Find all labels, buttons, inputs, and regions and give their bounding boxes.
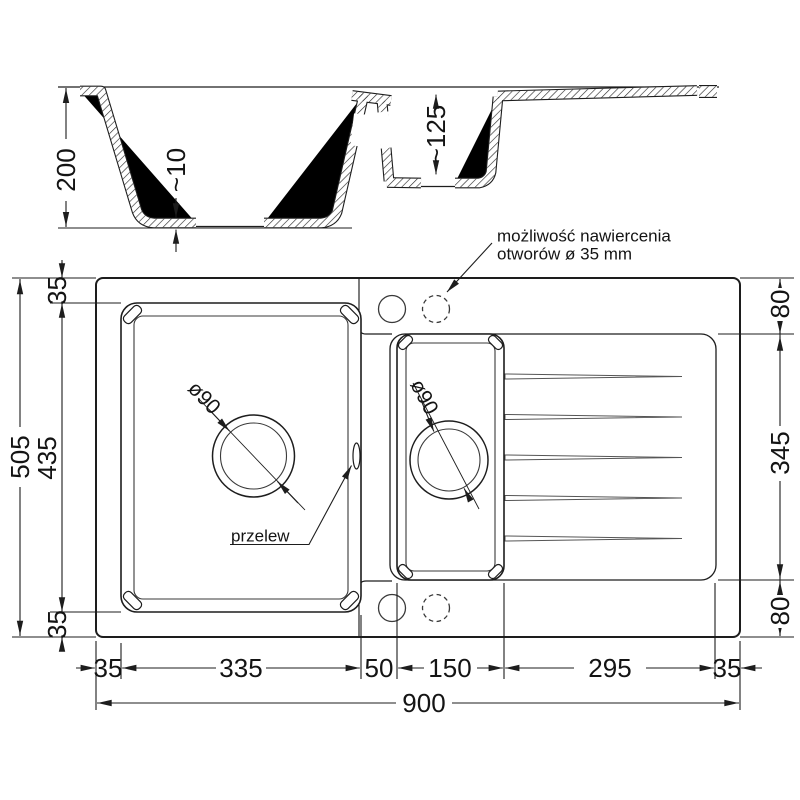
dim-bottom-m6-label: 35 — [713, 653, 742, 683]
plan-view: ø90 ø90 możliwość naw — [96, 227, 740, 638]
dim-left-bottom-label: 35 — [42, 610, 72, 639]
sink-technical-drawing: 200 ~10 ~125 — [0, 0, 800, 800]
drawing-svg: 200 ~10 ~125 — [0, 0, 800, 800]
dim-bottom-thickness-label: ~10 — [161, 148, 191, 192]
overflow-slot — [353, 443, 360, 469]
dim-left-middle-label: 435 — [32, 436, 62, 479]
overflow-channel-gap-small — [383, 112, 387, 148]
overflow-channel-gap-main — [357, 114, 361, 146]
dim-small-bowl-depth-label: ~125 — [421, 105, 451, 164]
dim-right-middle-label: 345 — [765, 431, 795, 474]
dim-width-total: 900 — [97, 688, 739, 718]
dim-left-top-label: 35 — [42, 276, 72, 305]
dim-bottom-m4-label: 150 — [428, 653, 471, 683]
small-bowl: ø90 — [397, 334, 504, 580]
dim-depth-total: 200 — [51, 88, 81, 227]
dim-bottom-m2-label: 335 — [219, 653, 262, 683]
dim-bottom-m1-label: 35 — [94, 653, 123, 683]
dim-depth-total-label: 200 — [51, 148, 81, 191]
dim-height-total: 505 — [5, 279, 35, 636]
dim-small-bowl-depth: ~125 — [421, 95, 451, 175]
dim-width-total-label: 900 — [402, 688, 445, 718]
note-holes-line1: możliwość nawiercenia — [497, 227, 671, 246]
overflow-label: przelew — [231, 527, 290, 546]
note-holes-line2: otworów ø 35 mm — [497, 245, 632, 264]
dim-height-total-label: 505 — [5, 435, 35, 478]
dim-right-top-label: 80 — [765, 290, 795, 319]
dim-left-column: 35 435 35 — [32, 260, 72, 651]
dim-bottom-m3-label: 50 — [365, 653, 394, 683]
dim-right-bottom-label: 80 — [765, 597, 795, 626]
dim-bottom-m5-label: 295 — [588, 653, 631, 683]
main-bowl: ø90 — [121, 303, 361, 612]
